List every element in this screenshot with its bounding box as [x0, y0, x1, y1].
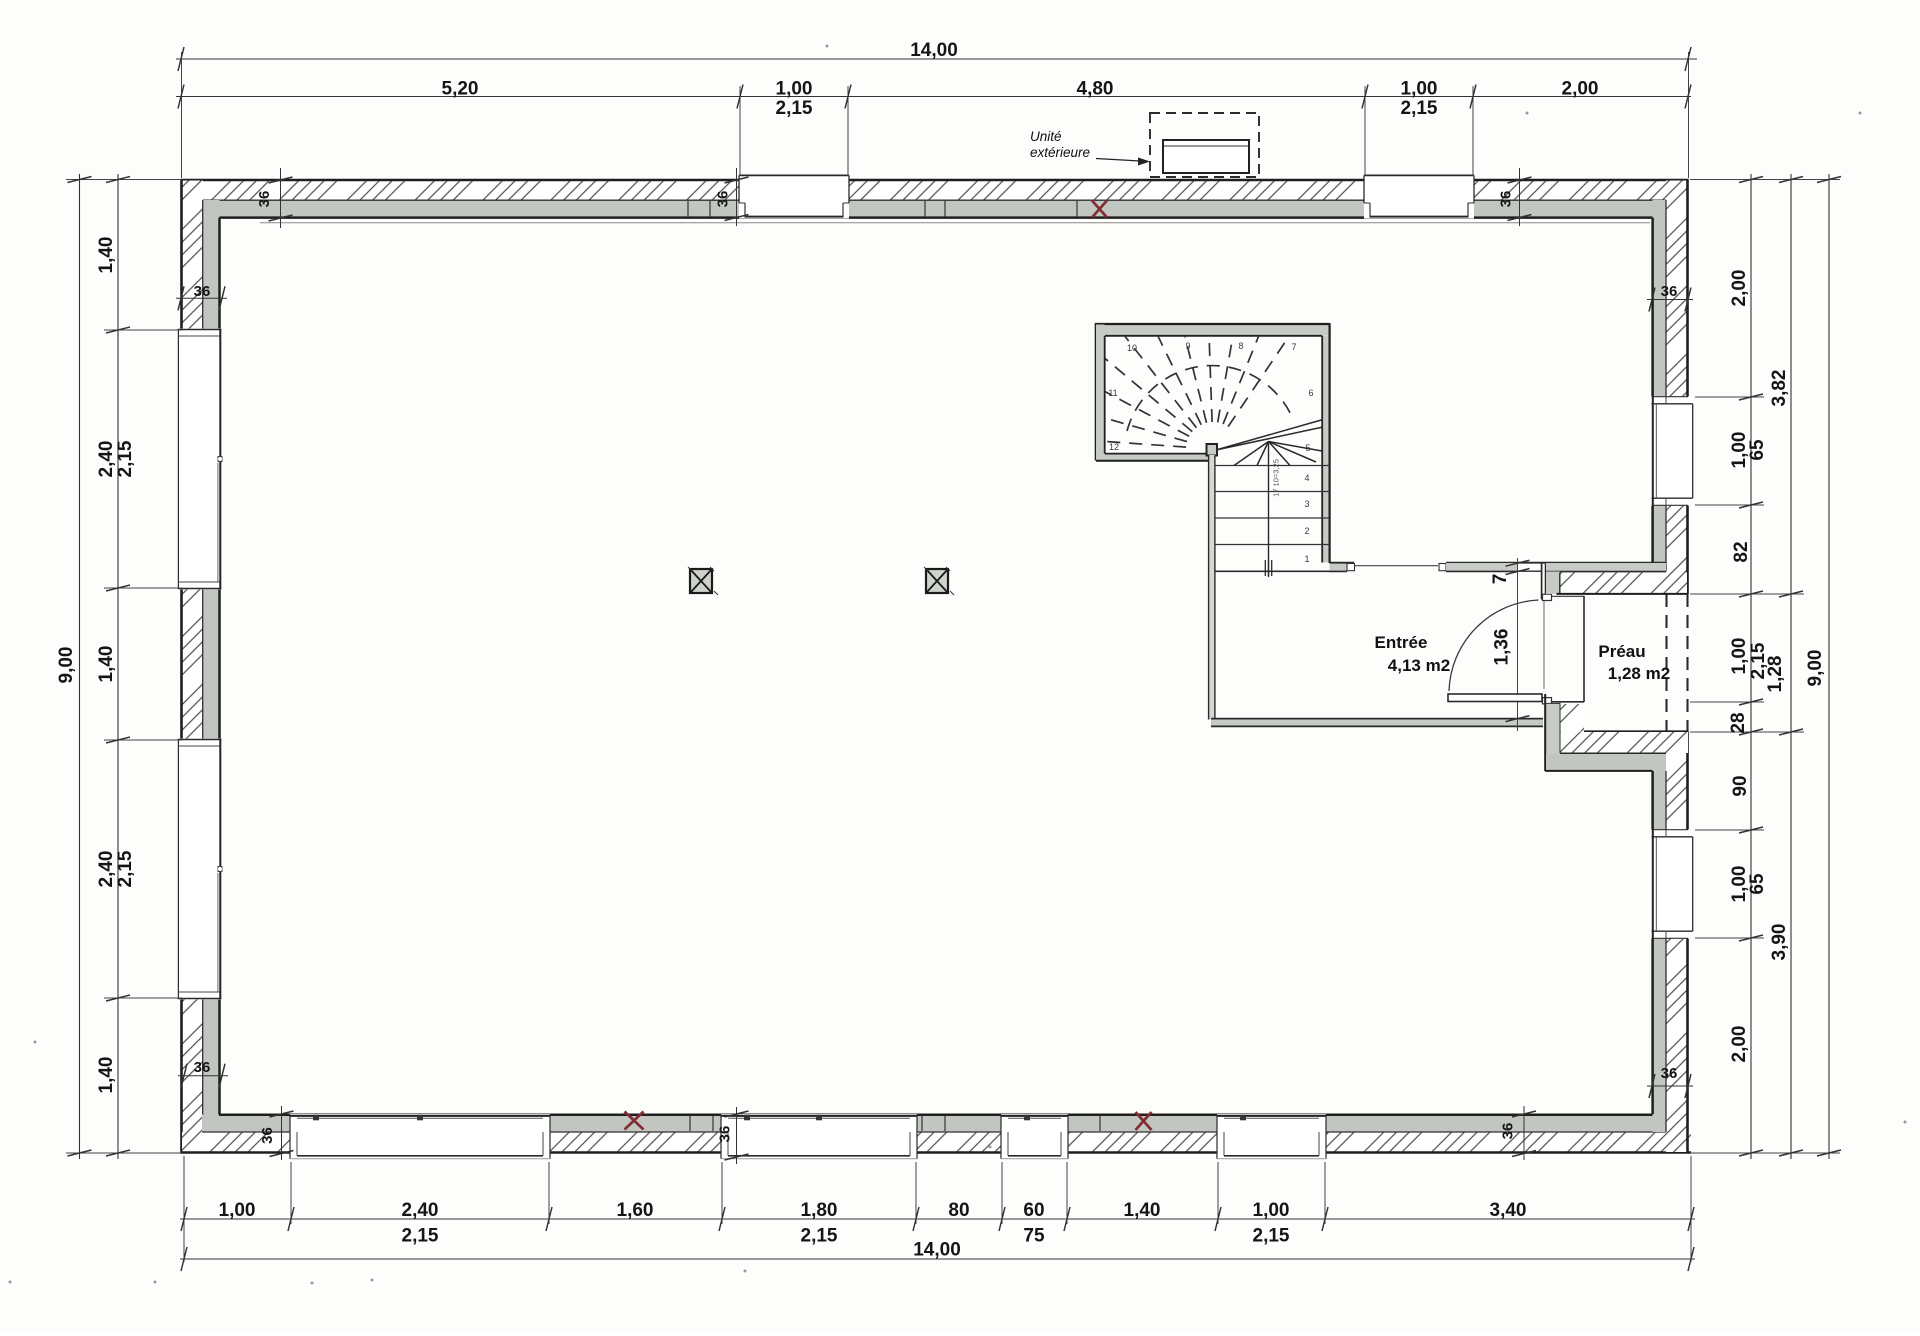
svg-text:17 10=3,25: 17 10=3,25 [1272, 459, 1281, 497]
svg-text:36: 36 [1498, 191, 1515, 208]
svg-text:7: 7 [1291, 342, 1296, 352]
svg-text:1,40: 1,40 [1124, 1200, 1161, 1221]
svg-text:9,00: 9,00 [1805, 650, 1826, 687]
svg-text:36: 36 [194, 283, 211, 300]
svg-text:2,15: 2,15 [1253, 1226, 1290, 1247]
svg-text:36: 36 [259, 1127, 276, 1144]
svg-text:36: 36 [715, 191, 732, 208]
svg-text:9: 9 [1185, 341, 1190, 351]
svg-text:1: 1 [1304, 554, 1309, 564]
svg-text:3,40: 3,40 [1490, 1200, 1527, 1221]
svg-text:2,15: 2,15 [776, 98, 813, 119]
svg-text:8: 8 [1238, 341, 1243, 351]
svg-text:1,80: 1,80 [801, 1200, 838, 1221]
svg-text:2,15: 2,15 [115, 850, 136, 887]
svg-text:80: 80 [948, 1200, 969, 1221]
svg-text:5,20: 5,20 [442, 79, 479, 100]
svg-text:extérieure: extérieure [1030, 145, 1090, 160]
svg-text:2,15: 2,15 [1401, 98, 1438, 119]
svg-text:3,90: 3,90 [1769, 924, 1790, 961]
svg-text:4: 4 [1304, 473, 1309, 483]
svg-text:2,00: 2,00 [1562, 79, 1599, 100]
svg-text:10: 10 [1127, 343, 1137, 353]
svg-text:36: 36 [256, 191, 273, 208]
svg-text:Préau: Préau [1598, 642, 1645, 661]
svg-text:9,00: 9,00 [56, 647, 77, 684]
svg-text:82: 82 [1731, 541, 1752, 562]
svg-text:3,82: 3,82 [1769, 370, 1790, 407]
svg-text:11: 11 [1108, 388, 1117, 398]
svg-text:6: 6 [1308, 388, 1313, 398]
svg-text:1,40: 1,40 [96, 1057, 117, 1094]
svg-text:2,00: 2,00 [1729, 1026, 1750, 1063]
svg-text:1,60: 1,60 [617, 1200, 654, 1221]
svg-text:1,00: 1,00 [776, 79, 813, 100]
svg-text:36: 36 [717, 1126, 734, 1143]
svg-text:36: 36 [194, 1059, 211, 1076]
svg-text:1,40: 1,40 [96, 646, 117, 683]
svg-text:36: 36 [1661, 1065, 1678, 1082]
svg-text:1,00: 1,00 [1729, 638, 1750, 675]
svg-text:2,40: 2,40 [96, 441, 117, 478]
svg-text:2,40: 2,40 [402, 1200, 439, 1221]
svg-text:2,15: 2,15 [115, 440, 136, 477]
svg-text:90: 90 [1730, 775, 1751, 796]
svg-text:2,00: 2,00 [1729, 270, 1750, 307]
svg-text:12: 12 [1109, 442, 1119, 452]
svg-text:60: 60 [1023, 1200, 1044, 1221]
svg-text:1,00: 1,00 [1253, 1200, 1290, 1221]
svg-text:65: 65 [1747, 873, 1768, 895]
svg-text:2,15: 2,15 [402, 1226, 439, 1247]
svg-text:14,00: 14,00 [910, 40, 958, 61]
svg-text:36: 36 [1500, 1123, 1517, 1140]
svg-text:1,28: 1,28 [1765, 656, 1786, 693]
svg-text:5: 5 [1305, 443, 1310, 453]
svg-text:2,15: 2,15 [801, 1226, 838, 1247]
svg-text:2,40: 2,40 [96, 851, 117, 888]
svg-text:36: 36 [1661, 283, 1678, 300]
svg-text:75: 75 [1023, 1226, 1045, 1247]
svg-text:1,28 m2: 1,28 m2 [1608, 664, 1670, 683]
svg-text:7: 7 [1490, 574, 1511, 585]
svg-text:65: 65 [1747, 439, 1768, 461]
svg-text:14,00: 14,00 [913, 1240, 961, 1261]
svg-text:Entrée: Entrée [1375, 633, 1428, 652]
svg-text:4,13 m2: 4,13 m2 [1388, 656, 1450, 675]
svg-text:3: 3 [1304, 499, 1309, 509]
svg-text:1,36: 1,36 [1492, 629, 1513, 666]
svg-text:1,00: 1,00 [219, 1200, 256, 1221]
svg-text:4,80: 4,80 [1077, 79, 1114, 100]
svg-text:28: 28 [1728, 712, 1749, 733]
svg-text:Unité: Unité [1030, 129, 1062, 144]
svg-text:1,40: 1,40 [96, 237, 117, 274]
svg-text:1,00: 1,00 [1401, 79, 1438, 100]
svg-text:2: 2 [1304, 526, 1309, 536]
